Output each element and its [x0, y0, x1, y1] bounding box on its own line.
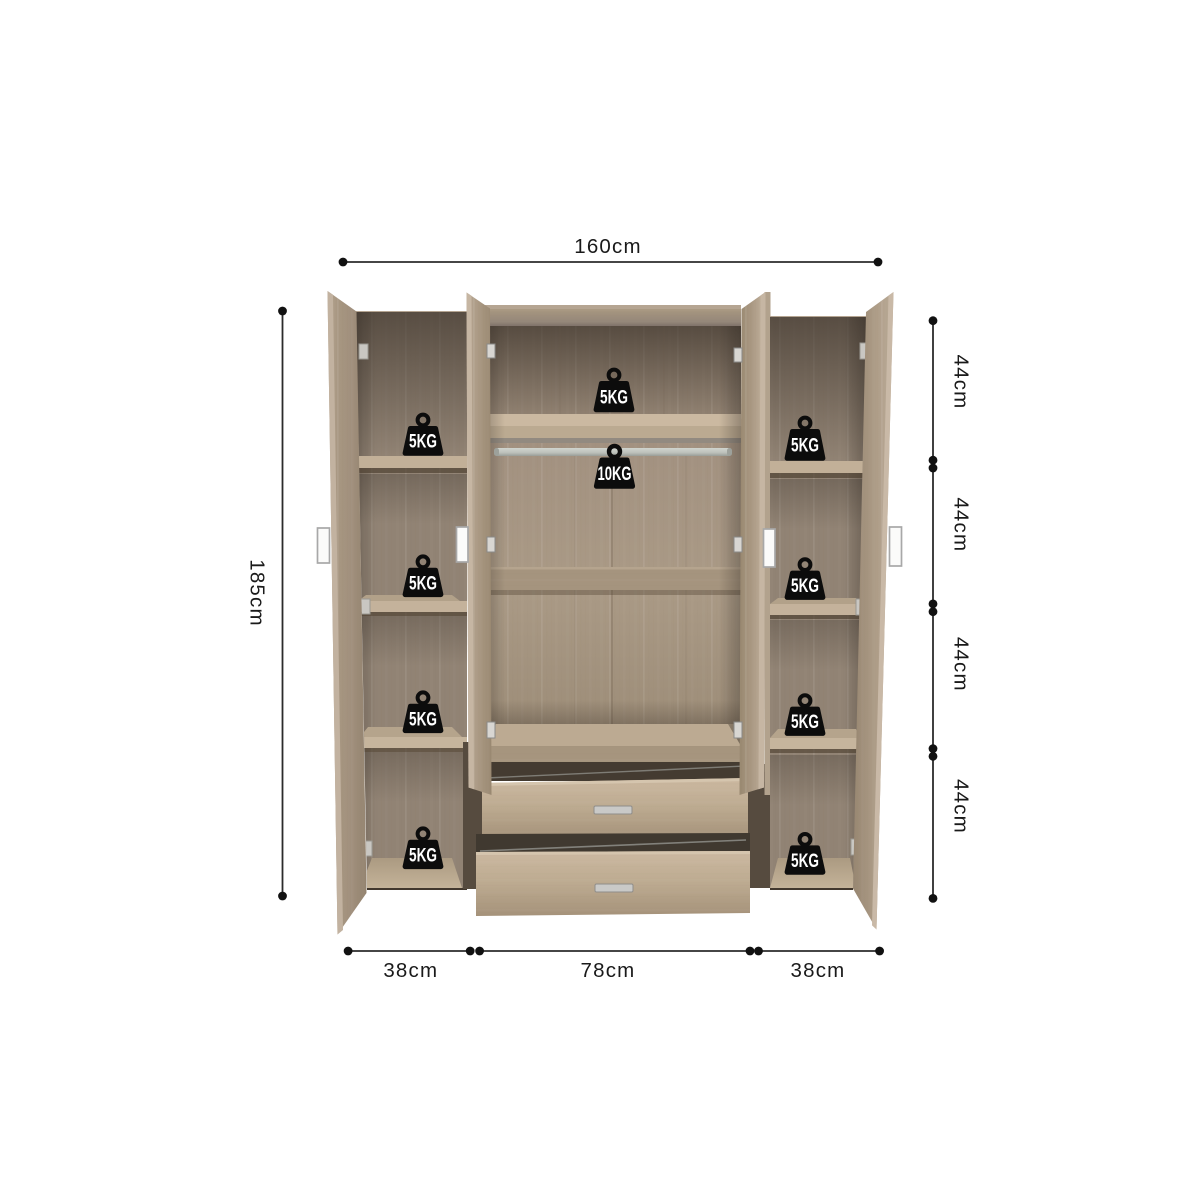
svg-text:5KG: 5KG: [791, 712, 819, 733]
svg-text:44cm: 44cm: [950, 497, 973, 552]
svg-text:44cm: 44cm: [950, 779, 973, 834]
svg-text:160cm: 160cm: [574, 235, 642, 258]
svg-text:5KG: 5KG: [791, 436, 819, 457]
svg-text:5KG: 5KG: [791, 576, 819, 597]
svg-text:38cm: 38cm: [791, 959, 846, 982]
svg-text:10KG: 10KG: [598, 464, 632, 485]
svg-text:5KG: 5KG: [409, 432, 437, 453]
svg-text:5KG: 5KG: [409, 573, 437, 594]
svg-text:5KG: 5KG: [409, 845, 437, 866]
svg-text:44cm: 44cm: [950, 355, 973, 410]
svg-text:78cm: 78cm: [581, 959, 636, 982]
svg-text:185cm: 185cm: [246, 559, 269, 627]
svg-text:5KG: 5KG: [600, 387, 628, 408]
svg-text:38cm: 38cm: [383, 959, 438, 982]
svg-text:5KG: 5KG: [409, 709, 437, 730]
svg-text:5KG: 5KG: [791, 851, 819, 872]
svg-text:44cm: 44cm: [950, 637, 973, 692]
